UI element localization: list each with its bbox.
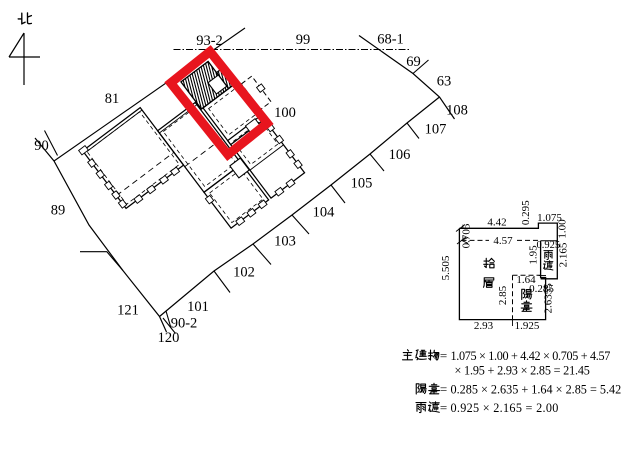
svg-text:102: 102 xyxy=(233,265,255,281)
svg-text:120: 120 xyxy=(158,330,180,346)
svg-text:2.6355: 2.6355 xyxy=(543,283,555,314)
svg-text:=: = xyxy=(440,400,447,415)
svg-text:0.295: 0.295 xyxy=(520,200,532,225)
svg-text:2.93: 2.93 xyxy=(474,320,494,332)
svg-text:× 1.95 + 2.93 × 2.85 = 21.45: × 1.95 + 2.93 × 2.85 = 21.45 xyxy=(455,364,590,378)
svg-text:69: 69 xyxy=(406,54,421,70)
svg-text:1.95: 1.95 xyxy=(528,245,540,265)
svg-text:106: 106 xyxy=(389,147,411,163)
svg-text:1.075 × 1.00 + 4.42 × 0.705 +: 1.075 × 1.00 + 4.42 × 0.705 + 4.57 xyxy=(451,349,611,363)
svg-text:1.00: 1.00 xyxy=(557,219,569,239)
svg-text:5.505: 5.505 xyxy=(440,255,452,280)
svg-text:103: 103 xyxy=(274,234,296,250)
svg-text:90: 90 xyxy=(34,138,49,154)
svg-text:4.57: 4.57 xyxy=(493,235,513,247)
svg-text:1.925: 1.925 xyxy=(515,320,540,332)
svg-text:0.285 × 2.635 + 1.64 × 2.85 =: 0.285 × 2.635 + 1.64 × 2.85 = 5.42 xyxy=(451,383,622,397)
svg-text:68-1: 68-1 xyxy=(377,32,404,48)
svg-text:100: 100 xyxy=(274,105,296,121)
svg-text:4.42: 4.42 xyxy=(487,217,506,229)
svg-text:=: = xyxy=(440,382,447,397)
svg-text:=: = xyxy=(440,348,447,363)
svg-text:107: 107 xyxy=(425,122,447,138)
svg-text:105: 105 xyxy=(351,176,373,192)
svg-text:81: 81 xyxy=(105,91,120,107)
svg-text:99: 99 xyxy=(296,32,311,48)
svg-text:93-2: 93-2 xyxy=(196,33,223,49)
svg-text:121: 121 xyxy=(117,303,139,319)
svg-text:2.165: 2.165 xyxy=(558,242,570,267)
svg-text:101: 101 xyxy=(187,299,209,315)
svg-text:0.925 × 2.165 = 2.00: 0.925 × 2.165 = 2.00 xyxy=(451,401,559,415)
svg-text:0.705: 0.705 xyxy=(461,223,473,248)
svg-text:63: 63 xyxy=(437,74,452,90)
svg-text:2.85: 2.85 xyxy=(497,285,509,305)
svg-text:89: 89 xyxy=(51,203,66,219)
svg-text:108: 108 xyxy=(446,103,468,119)
svg-text:104: 104 xyxy=(313,205,336,221)
